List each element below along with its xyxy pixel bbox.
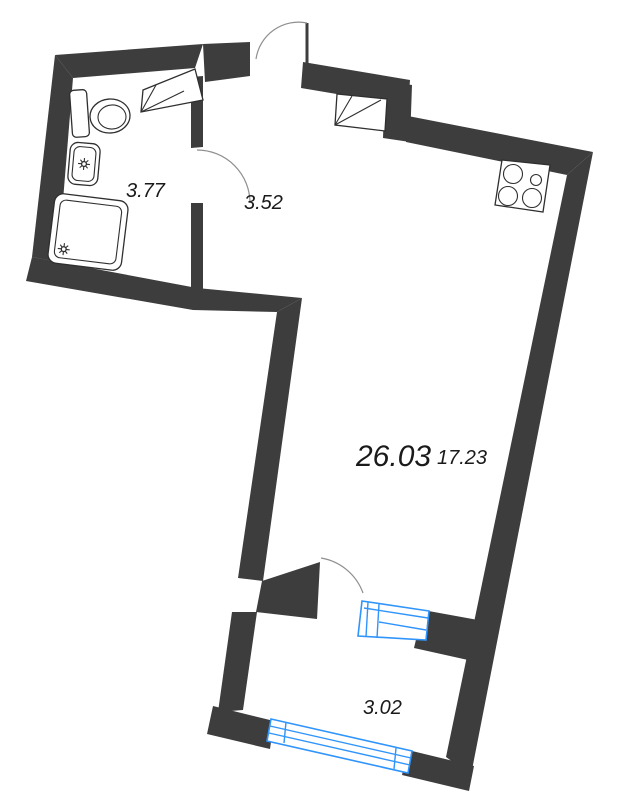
sink	[67, 142, 101, 186]
shower-outer	[47, 193, 129, 271]
entrance-door-arc	[256, 22, 307, 59]
wall-balcony-divider-left	[256, 562, 320, 619]
wall-left-balcony	[218, 612, 257, 712]
floor-plan-svg: 3.77 3.52 26.03 17.23 3.02	[0, 0, 623, 800]
wall-bathroom-right-lower	[191, 203, 203, 292]
wall-balcony-corner-left	[207, 706, 274, 749]
balcony-door-arc	[321, 558, 363, 593]
shower-cabin	[47, 193, 129, 271]
floor-plan-page: 3.77 3.52 26.03 17.23 3.02	[0, 0, 623, 800]
stove	[495, 160, 550, 212]
wall-entrance-left	[203, 42, 250, 82]
wall-kitchen-top	[406, 116, 593, 175]
balcony-door-window-unit	[358, 601, 429, 640]
walls	[26, 42, 593, 791]
total-area-label: 26.03	[355, 440, 431, 473]
wall-bathroom-top	[55, 44, 203, 78]
toilet-tank	[69, 89, 89, 137]
bathroom-door-arc	[197, 150, 250, 203]
wall-left-main	[238, 298, 302, 581]
hallway-area-label: 3.52	[244, 192, 283, 214]
bathroom-area-label: 3.77	[126, 180, 166, 202]
balcony-area-label: 3.02	[363, 697, 402, 719]
toilet	[69, 89, 131, 137]
living-area-label: 17.23	[437, 447, 487, 469]
balcony-outer-window	[267, 719, 412, 773]
vent-shaft	[335, 94, 387, 131]
